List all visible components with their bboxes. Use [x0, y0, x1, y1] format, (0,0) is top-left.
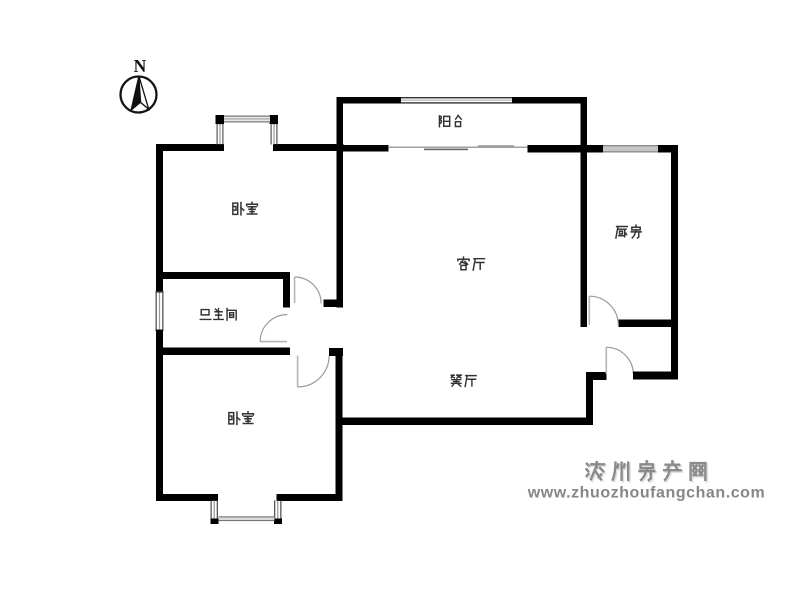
svg-text:www.zhuozhoufangchan.com: www.zhuozhoufangchan.com — [527, 485, 766, 502]
svg-text:N: N — [134, 56, 147, 76]
